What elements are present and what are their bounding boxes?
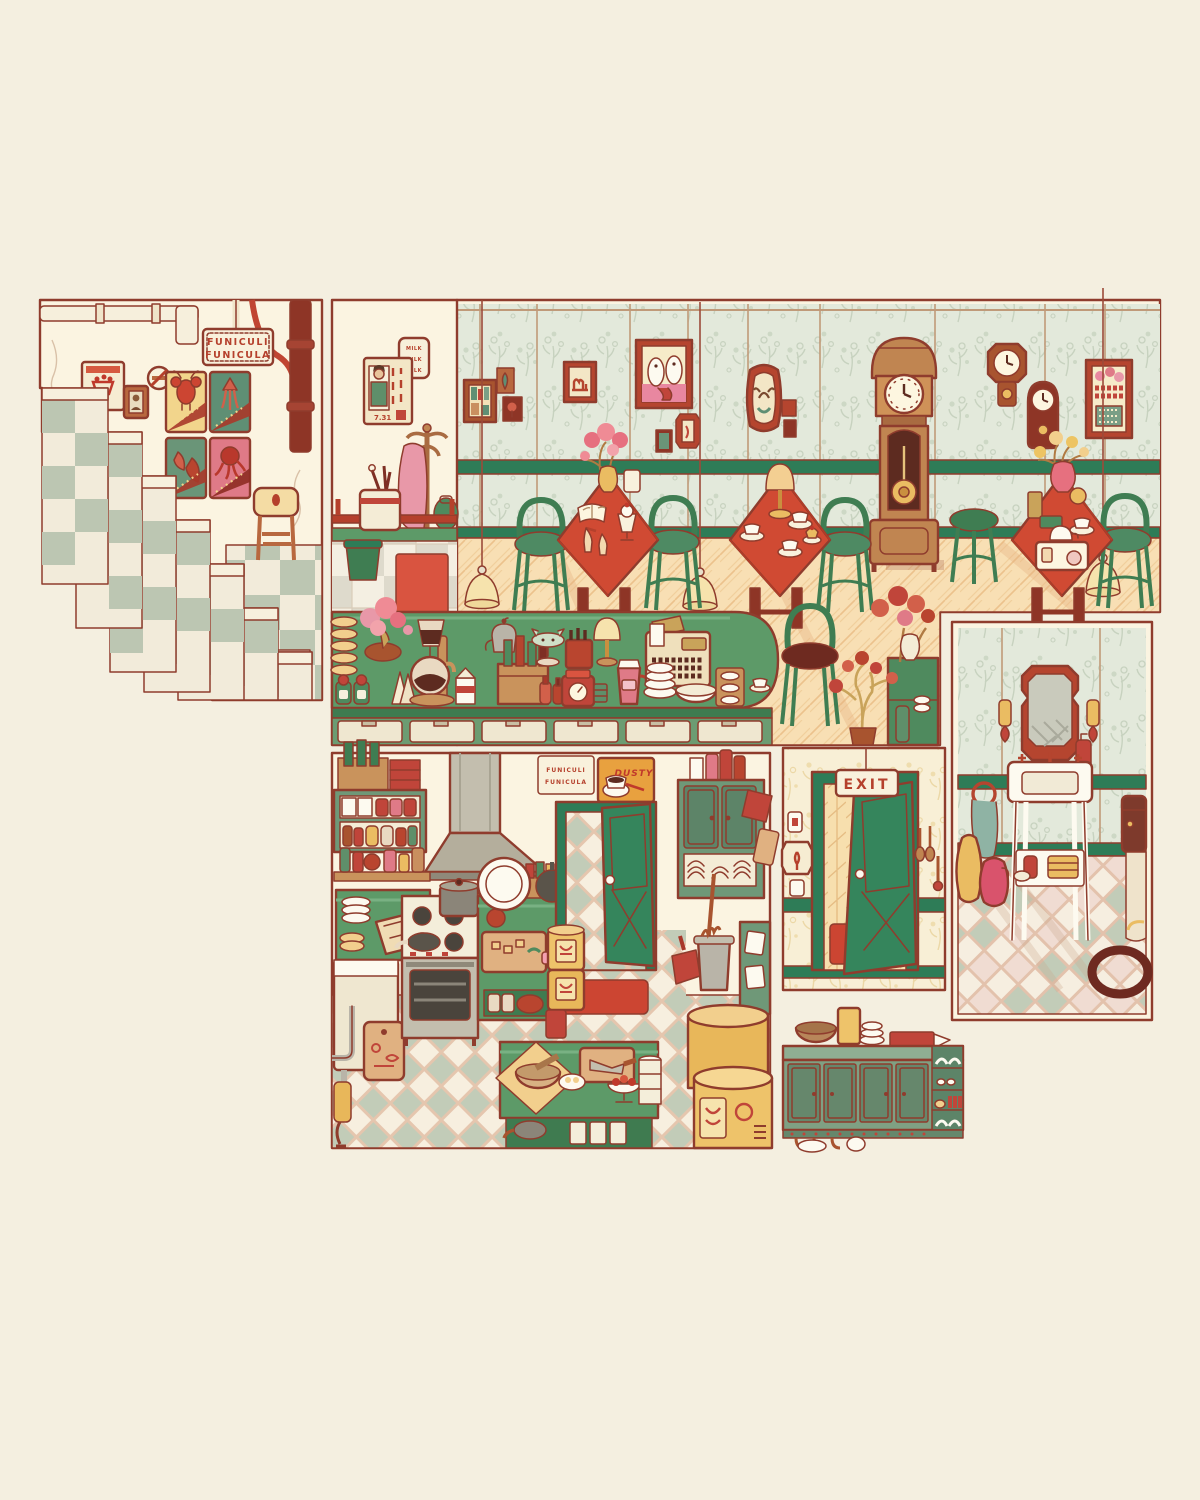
red-pot (517, 995, 543, 1013)
honey-jar (1070, 488, 1086, 504)
yellow-vase (956, 835, 981, 902)
coffee-cup (1070, 518, 1094, 535)
light-switch (788, 812, 802, 832)
water-glass (624, 470, 640, 492)
tulip-mini-frame (782, 842, 812, 874)
kitchen-card-line1: FUNICULI (546, 767, 586, 774)
mop-bucket (698, 940, 730, 990)
kitchen-scale (562, 670, 594, 706)
moose-ornate-frame (747, 365, 781, 431)
cafe-illustration: FUNICULI FUNICULA (0, 0, 1200, 1500)
counter-end-cup (750, 679, 770, 693)
cup-rack (716, 668, 744, 706)
sign-text-line2: FUNICULA (205, 350, 271, 361)
red-box-tilted (742, 790, 772, 822)
washroom-mirror (1022, 666, 1078, 760)
poster-date: 7.31 (374, 414, 391, 422)
dusty-text: DUSTY (615, 769, 654, 779)
coin-stacks (594, 684, 607, 702)
lobster-poster (166, 371, 206, 432)
pink-jug (980, 858, 1008, 906)
oven (402, 958, 478, 1046)
service-counter (331, 597, 778, 745)
match-stand (1028, 492, 1042, 518)
leaf-mini-frame (497, 368, 514, 393)
milk-line1: MILK (406, 346, 423, 352)
camel-painting (564, 362, 596, 402)
bookshelf-painting (464, 380, 496, 422)
portrait-mini-frame (124, 386, 148, 418)
bottom-bowls (798, 1140, 826, 1152)
pink-poster-frame (1086, 360, 1132, 438)
cistern (1122, 796, 1146, 852)
beer-poster: 7.31 (364, 358, 412, 424)
red-panel (396, 554, 448, 618)
sideboard-rail (783, 1130, 963, 1152)
hanging-cutting-board (364, 1022, 404, 1080)
kitchen-card-line2: FUNICULA (545, 779, 587, 786)
red-tin (546, 1010, 566, 1038)
bottom-egg-bowl (847, 1137, 865, 1151)
prep-table-shelf (504, 1118, 652, 1148)
sideboard-top-items (796, 1008, 950, 1048)
outlet (790, 880, 804, 896)
dusty-poster: DUSTY (598, 758, 654, 802)
sconce-right (1087, 700, 1099, 742)
washroom-panel (952, 622, 1152, 1020)
folded-towel (1048, 856, 1078, 878)
counter-edge (332, 708, 772, 718)
sign-text-line1: FUNICULI (207, 337, 269, 348)
counter-drawers (332, 718, 772, 745)
exit-hall-panel: EXIT (782, 748, 945, 990)
mustard-bottle (334, 1082, 351, 1122)
exit-door (812, 772, 918, 974)
waste-bin (344, 540, 382, 580)
corner-vase (901, 634, 920, 660)
kitchen-card-sign: FUNICULI FUNICULA (538, 756, 594, 794)
sauce-bowl (487, 909, 505, 927)
exit-door-leaf (844, 782, 916, 974)
funiculi-funicula-sign: FUNICULI FUNICULA (203, 329, 273, 365)
board-and-cleaver (580, 1048, 636, 1082)
squid-poster (210, 372, 250, 432)
sideboard-open-shelves (932, 1046, 963, 1130)
tiny-frame-1 (782, 400, 796, 416)
canister-stack (639, 1056, 661, 1104)
yellow-canister (838, 1008, 860, 1044)
kitchen-sink (332, 960, 404, 1100)
prep-table (496, 1042, 661, 1148)
prep-cutting-board (482, 932, 546, 972)
green-bottle (896, 706, 909, 742)
tiny-frame-2 (784, 420, 796, 437)
stairwell-panel: FUNICULI FUNICULA (40, 300, 322, 700)
plate-stack-white (644, 663, 676, 698)
drum-label (700, 1098, 726, 1138)
dough-bowl (559, 1074, 585, 1090)
sideboard-panel (783, 1008, 963, 1152)
octopus-poster (210, 438, 250, 498)
green-mini-frame (656, 430, 672, 452)
storage-drums (688, 1005, 772, 1148)
plate-stack-yellow (331, 617, 357, 675)
kitchen-panel: FUNICULI FUNICULA DUSTY (332, 740, 779, 1148)
shelf-pan (514, 1121, 546, 1139)
owls-painting (636, 340, 692, 408)
paper-stand (740, 922, 770, 1014)
sconce-left (999, 700, 1011, 742)
door-knob (856, 870, 865, 879)
serving-bowl (676, 684, 716, 702)
octagon-mini-frame (676, 414, 700, 448)
exit-text: EXIT (843, 777, 890, 793)
kitchen-door-knob (606, 876, 615, 885)
can-stack (390, 760, 420, 790)
soap-dish (1014, 871, 1030, 881)
floral-mini-frame (503, 397, 522, 421)
